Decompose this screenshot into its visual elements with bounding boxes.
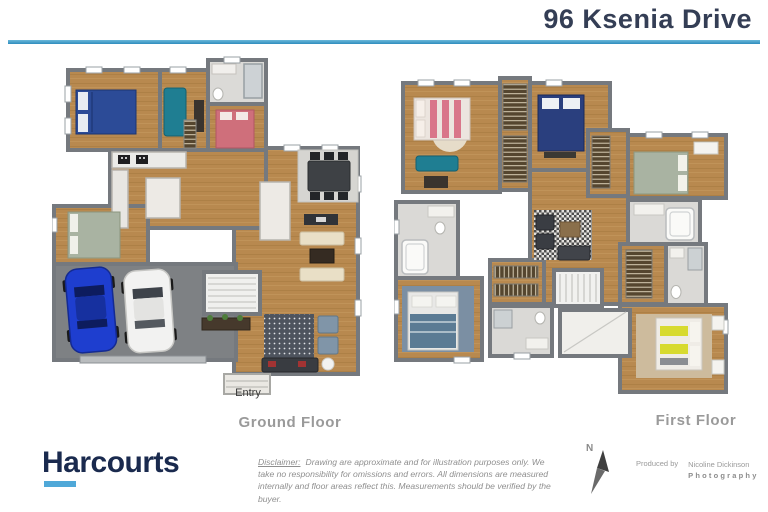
navy-bed bbox=[538, 95, 584, 158]
dark-sofa bbox=[558, 246, 590, 260]
clothes-rack bbox=[592, 136, 610, 188]
dining-area bbox=[298, 150, 358, 202]
teal-sofa bbox=[164, 88, 186, 136]
first-floor-label: First Floor bbox=[600, 412, 768, 429]
ground-floor-plan-svg bbox=[52, 56, 366, 402]
harcourts-logo: Harcourts bbox=[42, 446, 179, 480]
armchair bbox=[318, 316, 338, 333]
side-table bbox=[322, 358, 334, 370]
clothes-rack bbox=[494, 266, 538, 278]
disclaimer-text: Drawing are approximate and for illustra… bbox=[258, 457, 551, 504]
living-rug bbox=[264, 314, 314, 360]
compass-needle bbox=[591, 468, 605, 494]
armchair bbox=[536, 234, 554, 249]
sage-gray-bed bbox=[68, 212, 120, 258]
page-title: 96 Ksenia Drive bbox=[543, 4, 752, 35]
staircase bbox=[204, 272, 260, 314]
garage-door bbox=[80, 356, 206, 363]
producer-credit: Produced by Nicoline Dickinson Photograp… bbox=[636, 459, 759, 482]
blue-bed bbox=[76, 90, 136, 134]
disclaimer-label: Disclaimer: bbox=[258, 457, 301, 467]
living-area bbox=[262, 314, 338, 372]
hall-wardrobe bbox=[184, 120, 196, 148]
kitchen-island bbox=[146, 178, 180, 218]
master-bedroom-furniture bbox=[636, 314, 724, 378]
armchair bbox=[318, 337, 338, 354]
clothes-rack bbox=[503, 84, 527, 130]
blue-gray-bed bbox=[402, 286, 474, 352]
ground-floor-label: Ground Floor bbox=[190, 414, 390, 431]
teal-sofa bbox=[416, 156, 458, 171]
pink-striped-bed bbox=[414, 98, 470, 140]
clothes-rack bbox=[503, 136, 527, 182]
flyer-page: 96 Ksenia Drive bbox=[0, 0, 768, 512]
clothes-rack bbox=[626, 250, 652, 298]
compass-icon: N bbox=[578, 438, 622, 500]
ground-floor-plan bbox=[52, 56, 366, 402]
sage-bed bbox=[634, 152, 688, 194]
producer-name: Nicoline Dickinson Photography bbox=[688, 459, 758, 482]
white-car bbox=[120, 268, 178, 353]
armchair bbox=[536, 215, 554, 230]
first-floor-plan-svg bbox=[394, 60, 730, 402]
sitting-area bbox=[534, 210, 592, 260]
dining-table bbox=[308, 161, 350, 191]
produced-by-label: Produced by bbox=[636, 459, 678, 482]
dresser bbox=[694, 142, 718, 154]
header-accent-line bbox=[8, 40, 760, 44]
entry-label: Entry bbox=[218, 387, 278, 399]
coffee-table bbox=[560, 222, 580, 237]
clothes-rack bbox=[494, 284, 538, 296]
coffee-table bbox=[424, 176, 448, 188]
island-bench bbox=[260, 182, 290, 240]
pink-bed bbox=[216, 110, 254, 148]
compass-north-label: N bbox=[586, 443, 593, 454]
first-floor-plan bbox=[394, 60, 730, 402]
disclaimer: Disclaimer:Drawing are approximate and f… bbox=[258, 456, 554, 505]
blue-car bbox=[61, 266, 120, 354]
logo-underline bbox=[44, 481, 76, 487]
